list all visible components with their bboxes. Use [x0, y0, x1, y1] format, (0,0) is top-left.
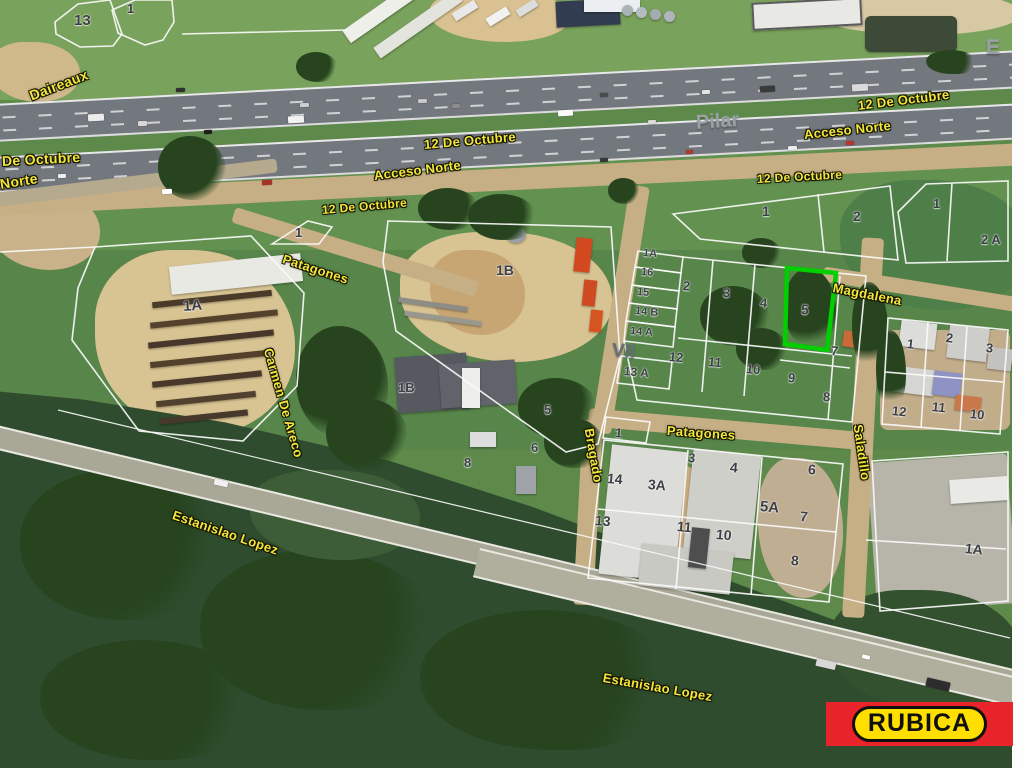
parcel-label: 8 — [790, 552, 799, 569]
parcel-label: 3 — [687, 450, 696, 466]
parcel-label: 12 — [668, 349, 684, 365]
parcel-label: 6 — [807, 461, 816, 478]
parcel-label: 3 — [722, 285, 731, 301]
parcel-label: 1 — [614, 425, 623, 441]
parcel-label: 14 — [606, 470, 623, 487]
parcel-label: 5A — [759, 498, 780, 517]
parcel-label: 14 A — [629, 325, 653, 339]
satellite-map: DaireauxDe OctubreNorte12 De OctubreAcce… — [0, 0, 1024, 768]
parcel-label: 14 B — [634, 305, 658, 319]
image-margin — [1012, 0, 1024, 768]
rubica-logo-text: RUBICA — [852, 706, 987, 743]
parcel-label: 10 — [715, 526, 732, 543]
parcel-label: 3A — [647, 476, 666, 493]
parcel-label: 3 — [985, 340, 994, 356]
parcel-label: 16 — [640, 266, 653, 279]
parcel-label: 8 — [464, 455, 471, 470]
parcel-label: 10 — [969, 406, 985, 422]
parcel-label: 1B — [398, 380, 415, 395]
parcel-label: 13 — [74, 12, 91, 29]
parcel-label: 12 — [891, 403, 907, 419]
parcel-label: 1 — [933, 196, 940, 211]
parcel-label: 2 A — [981, 232, 1001, 247]
rubica-logo[interactable]: RUBICA — [826, 702, 1013, 746]
parcel-label: 5 — [544, 402, 551, 417]
parcel-label: 1A — [642, 247, 657, 260]
parcel-label: 1 — [762, 203, 770, 219]
parcel-label: 13 — [594, 512, 611, 529]
parcel-label: 4 — [759, 295, 768, 311]
parcel-label: 13 A — [623, 364, 649, 380]
parcel-label: 11 — [707, 354, 722, 370]
parcel-label: 2 — [682, 278, 691, 294]
parcel-label: 15 — [636, 286, 649, 299]
parcel-label: 1 — [295, 225, 302, 240]
parcel-label: 4 — [729, 459, 738, 476]
parcel-label: 1 — [127, 1, 134, 16]
parcel-label: 7 — [830, 343, 839, 359]
parcel-label: 6 — [531, 440, 538, 455]
parcel-label: 1A — [182, 297, 202, 315]
parcel-label: 2 — [853, 208, 861, 224]
parcel-label: 1B — [496, 262, 514, 278]
parcel-label: 9 — [787, 370, 796, 386]
parcel-label: 2 — [945, 330, 954, 346]
parcel-label: 7 — [799, 508, 808, 525]
parcel-label: 11 — [931, 399, 946, 415]
parcel-label: 5 — [800, 301, 809, 318]
parcel-label: 10 — [745, 361, 761, 377]
parcel-label: 8 — [822, 389, 831, 405]
parcel-label: 1A — [964, 540, 983, 558]
parcel-labels-layer: 13111212 A1A1B1B5681A161514 B14 A13 A231… — [0, 0, 1024, 768]
parcel-label: 1 — [906, 336, 915, 352]
parcel-label: 11 — [676, 518, 692, 535]
